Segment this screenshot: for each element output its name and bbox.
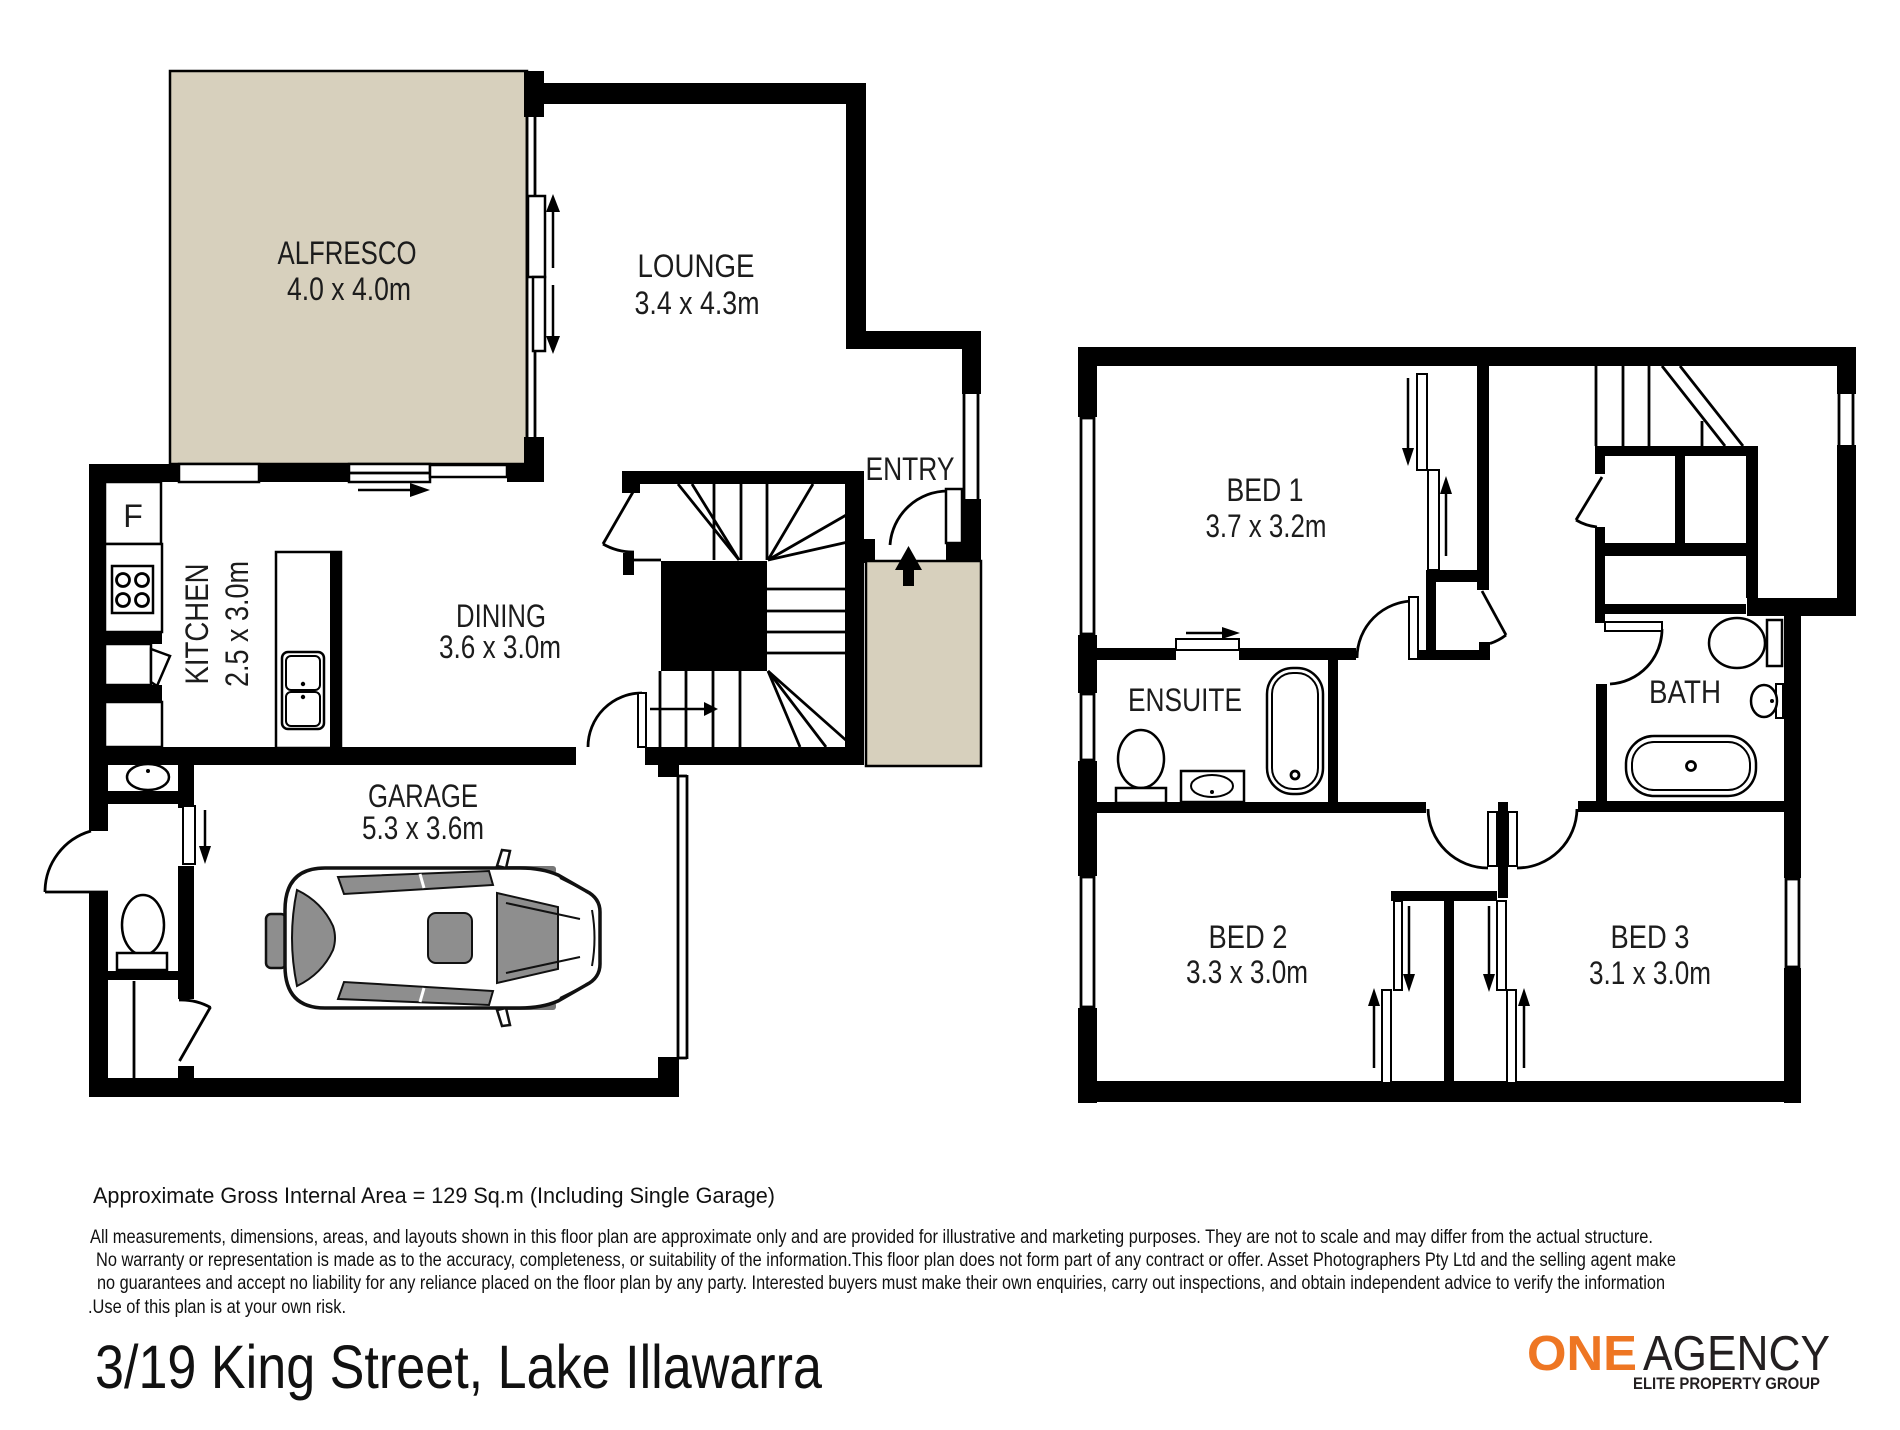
svg-text:.Use of this plan is at your o: .Use of this plan is at your own risk.	[88, 1297, 346, 1318]
svg-text:3.6 x 3.0m: 3.6 x 3.0m	[439, 629, 561, 665]
svg-text:BED 2: BED 2	[1209, 919, 1288, 955]
svg-text:F: F	[123, 498, 143, 534]
svg-text:ELITE PROPERTY GROUP: ELITE PROPERTY GROUP	[1633, 1375, 1820, 1393]
svg-text:Approximate Gross Internal Are: Approximate Gross Internal Area = 129 Sq…	[93, 1183, 775, 1208]
svg-text:KITCHEN: KITCHEN	[179, 564, 215, 685]
svg-text:BATH: BATH	[1649, 674, 1721, 710]
svg-text:GARAGE: GARAGE	[368, 778, 478, 814]
svg-text:3.1 x 3.0m: 3.1 x 3.0m	[1589, 955, 1711, 991]
svg-text:3.4 x 4.3m: 3.4 x 4.3m	[635, 285, 760, 321]
svg-text:3/19 King Street, Lake Illawar: 3/19 King Street, Lake Illawarra	[95, 1333, 822, 1401]
svg-text:AGENCY: AGENCY	[1643, 1327, 1830, 1381]
svg-text:LOUNGE: LOUNGE	[638, 248, 755, 284]
svg-text:ENTRY: ENTRY	[866, 451, 955, 487]
svg-text:3.3 x 3.0m: 3.3 x 3.0m	[1186, 954, 1308, 990]
svg-text:BED 1: BED 1	[1227, 472, 1304, 508]
svg-text:3.7 x 3.2m: 3.7 x 3.2m	[1206, 508, 1327, 544]
svg-text:no guarantees and accept no li: no guarantees and accept no liability fo…	[97, 1273, 1665, 1294]
svg-text:2.5 x 3.0m: 2.5 x 3.0m	[219, 561, 255, 687]
svg-text:ALFRESCO: ALFRESCO	[278, 235, 417, 271]
svg-text:4.0 x 4.0m: 4.0 x 4.0m	[287, 271, 411, 307]
svg-text:ENSUITE: ENSUITE	[1128, 682, 1242, 718]
svg-text:5.3 x 3.6m: 5.3 x 3.6m	[362, 810, 484, 846]
svg-text:ONE: ONE	[1527, 1327, 1637, 1381]
svg-text:All measurements, dimensions,: All measurements, dimensions, areas, and…	[90, 1227, 1653, 1248]
svg-text:No warranty or representation: No warranty or representation is made as…	[96, 1250, 1676, 1271]
svg-text:BED 3: BED 3	[1611, 919, 1690, 955]
